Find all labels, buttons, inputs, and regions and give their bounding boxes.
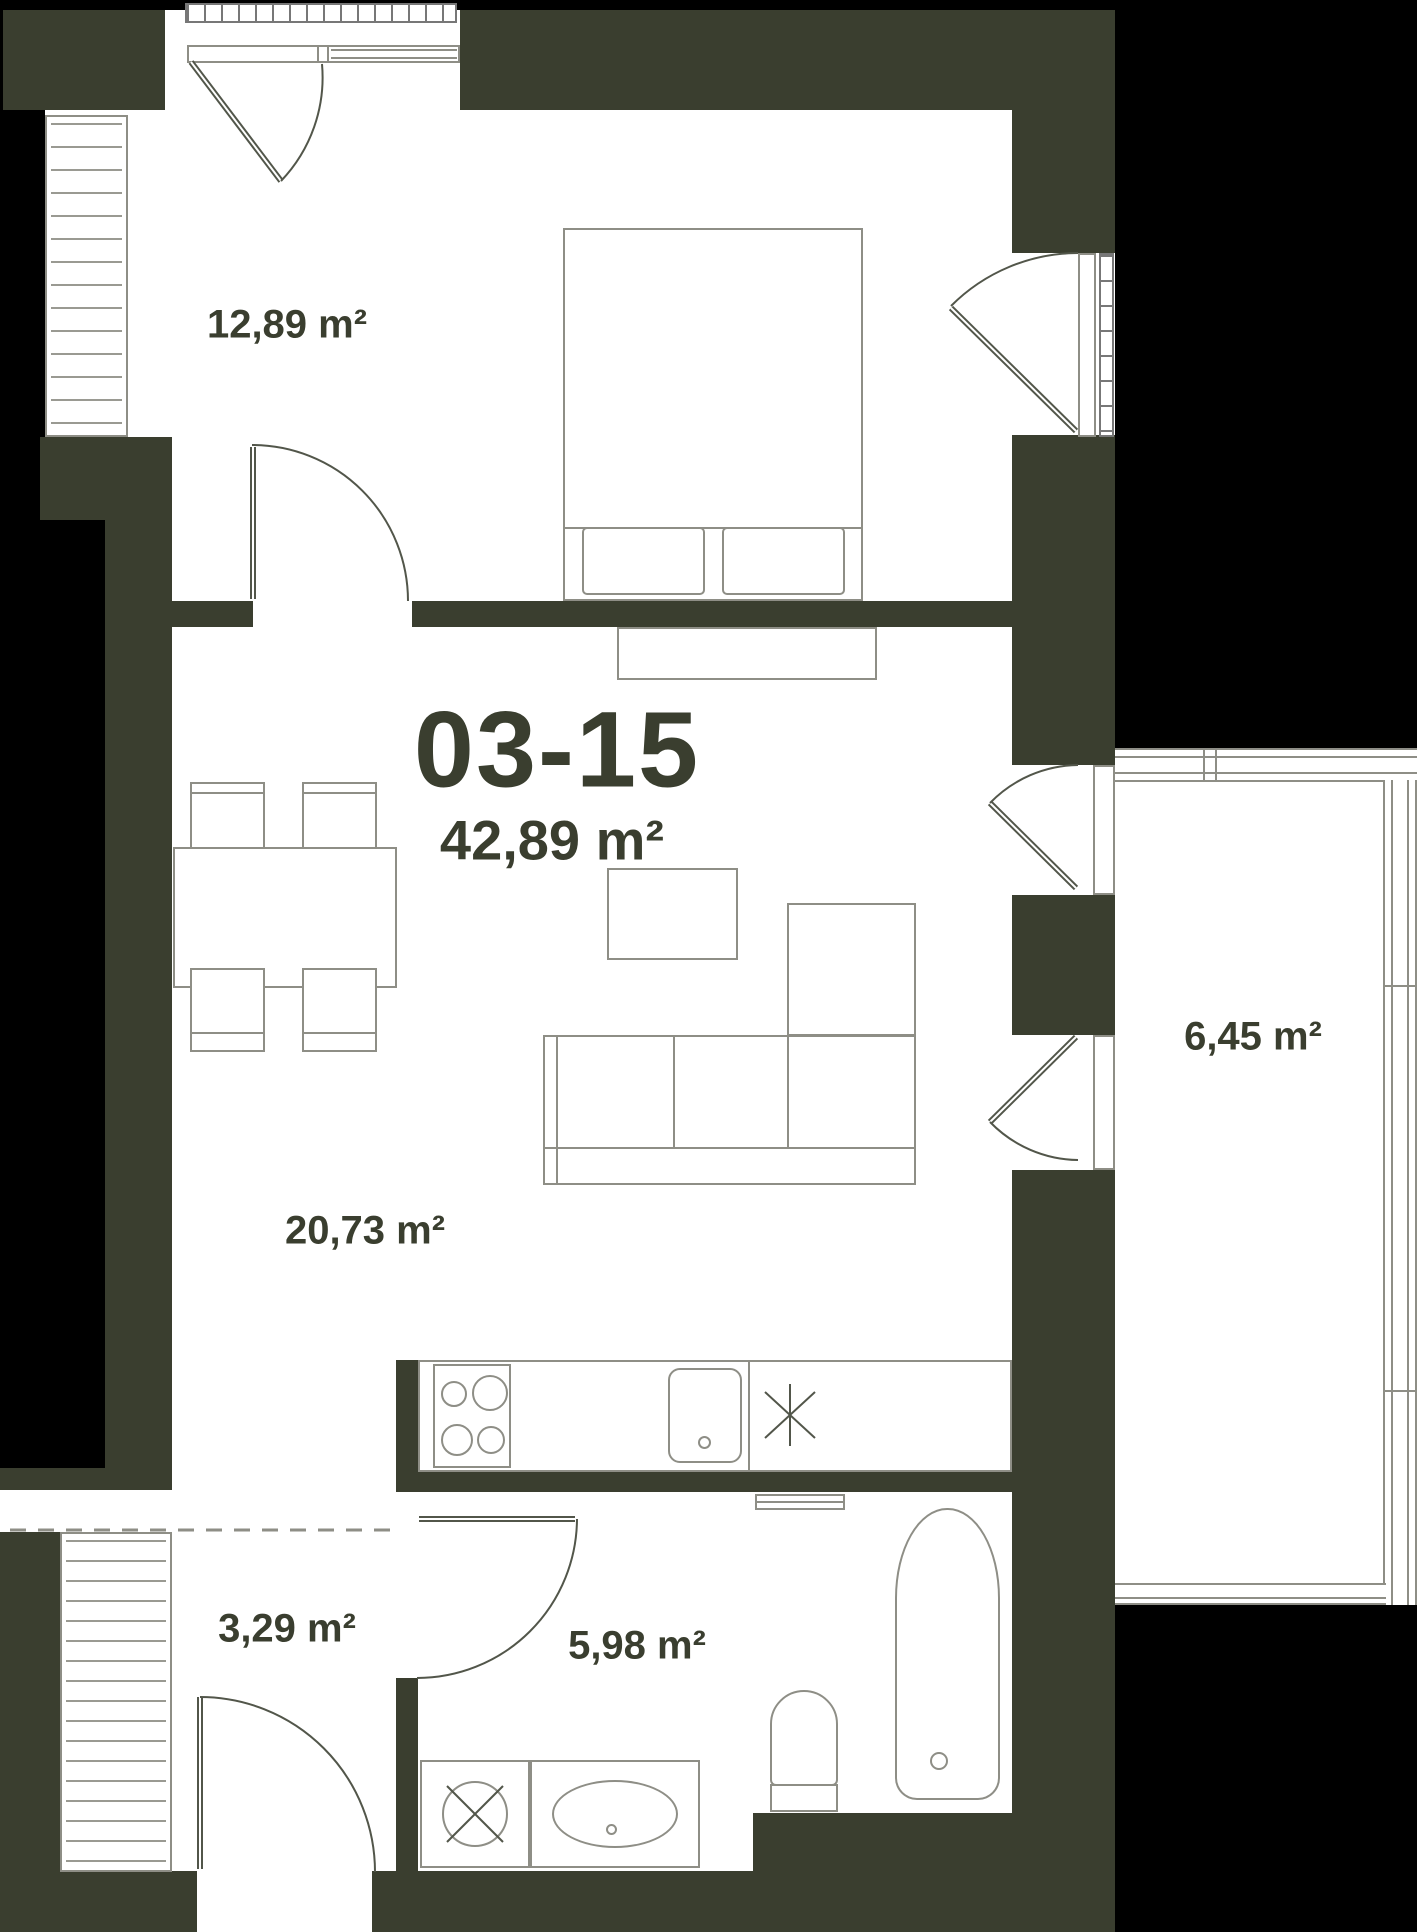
wall-bathroom-stub — [396, 1678, 418, 1871]
counter-divider — [748, 1360, 750, 1472]
label-balcony-area: 6,45 m² — [1184, 1015, 1322, 1060]
wall-bedroom-living-right — [412, 601, 1012, 627]
balcony-railing-post — [1215, 748, 1217, 782]
balcony-railing-post — [1383, 1390, 1417, 1392]
floor-entry-threshold — [197, 1871, 372, 1932]
dining-chair — [190, 968, 265, 1052]
balcony-railing-post — [1203, 748, 1205, 782]
stove-burner — [477, 1426, 505, 1454]
railing-inner-lines — [1115, 1589, 1386, 1599]
wall-right-lower — [1012, 1170, 1115, 1932]
balcony-railing-post — [1383, 985, 1417, 987]
coffee-table — [607, 868, 738, 960]
radiator-hallway — [60, 1532, 172, 1872]
wall-kitchen-bathroom — [396, 1472, 1012, 1492]
tv-bench — [617, 627, 877, 680]
pillow-left — [582, 527, 705, 595]
radiator-fins — [66, 1540, 166, 1864]
wall-between-balcony-doors — [1012, 895, 1115, 1035]
juliet-railing-right — [1099, 253, 1114, 437]
window-bedroom-right-frame — [1078, 253, 1096, 437]
stove-burner — [472, 1375, 508, 1411]
juliet-railing-top — [185, 3, 457, 23]
wall-bedroom-right-upper — [1012, 110, 1115, 253]
tub-drain — [930, 1752, 948, 1770]
railing-ticks — [187, 5, 455, 21]
railing-ticks — [1101, 255, 1112, 435]
wall-hallway-top — [0, 1468, 172, 1490]
wall-bottom-mid — [372, 1871, 753, 1932]
label-bathroom-area: 5,98 m² — [568, 1624, 706, 1669]
sofa-chaise — [787, 903, 916, 1036]
sofa-backrest-line — [543, 1147, 916, 1149]
wall-kitchen-stub — [396, 1360, 418, 1472]
chair-back-line — [304, 792, 375, 794]
towel-radiator-bar — [757, 1501, 843, 1503]
bathtub — [895, 1508, 1000, 1800]
unit-total-area: 42,89 m² — [440, 808, 664, 873]
radiator-fins — [51, 123, 122, 429]
stove-burner — [441, 1381, 467, 1407]
chair-back-line — [192, 1032, 263, 1034]
floor-balcony — [1115, 748, 1417, 1605]
sofa — [543, 1035, 916, 1185]
balcony-railing-bottom — [1115, 1583, 1386, 1605]
balcony-door-frame-lower — [1093, 1035, 1115, 1170]
chair-back-line — [304, 1032, 375, 1034]
sofa-armrest-line — [556, 1035, 558, 1185]
wall-hallway-left — [0, 1532, 60, 1932]
label-bedroom-area: 12,89 m² — [207, 303, 367, 348]
stove-burner — [441, 1424, 473, 1456]
label-hallway-area: 3,29 m² — [218, 1607, 356, 1652]
window-top-divider — [317, 45, 329, 63]
dining-table — [173, 847, 397, 988]
toilet — [770, 1690, 838, 1786]
dining-chair — [302, 968, 377, 1052]
wall-under-bedroom-radiator — [40, 437, 105, 520]
label-living-room-area: 20,73 m² — [285, 1209, 445, 1254]
wall-bottom-left — [60, 1871, 197, 1932]
vanity-basin — [552, 1780, 678, 1848]
railing-inner-lines — [1391, 780, 1409, 1605]
pillow-right — [722, 527, 845, 595]
balcony-railing-right — [1383, 780, 1417, 1605]
sofa-seat-divider — [673, 1035, 675, 1147]
balcony-railing-top — [1115, 748, 1417, 782]
washer-drum — [442, 1781, 508, 1847]
wall-right-mid — [1012, 435, 1115, 765]
floor-plan: 12,89 m² 03-15 42,89 m² 20,73 m² 6,45 m²… — [0, 0, 1417, 1932]
balcony-door-frame-upper — [1093, 765, 1115, 895]
basin-drain — [606, 1824, 617, 1835]
window-top-glazing — [331, 49, 457, 59]
wall-bedroom-living-left — [172, 601, 253, 627]
sofa-seat-divider — [787, 1035, 789, 1147]
toilet-base — [770, 1784, 838, 1812]
wall-top-left — [3, 10, 165, 110]
wall-living-left — [105, 437, 172, 1470]
chair-back-line — [192, 792, 263, 794]
towel-radiator — [755, 1494, 845, 1510]
radiator-bedroom — [45, 115, 128, 437]
unit-number: 03-15 — [414, 687, 700, 812]
wall-bathroom-step — [753, 1813, 1012, 1932]
wall-top-right — [460, 10, 1115, 110]
sink-drain — [698, 1436, 711, 1449]
railing-inner-lines — [1115, 756, 1417, 774]
